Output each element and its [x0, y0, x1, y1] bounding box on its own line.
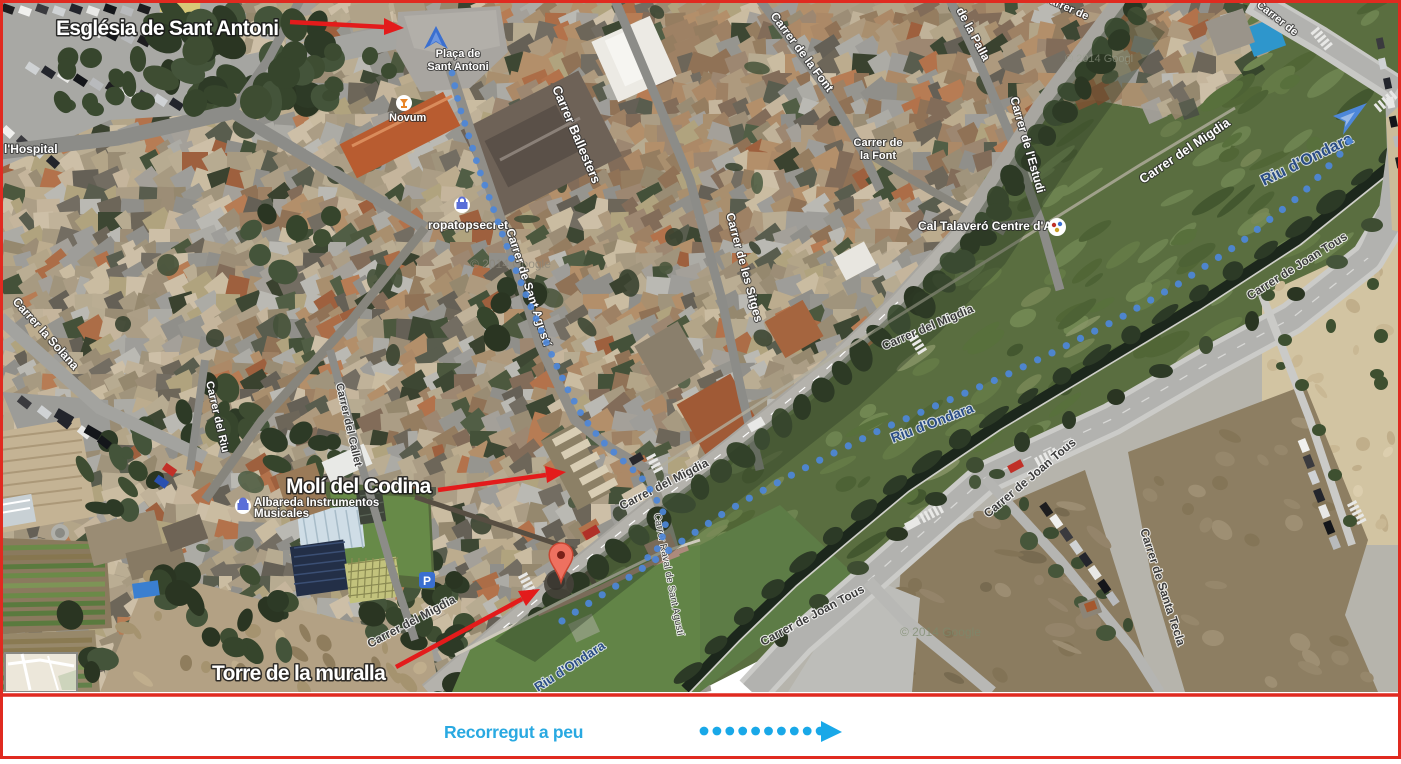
svg-text:Recorregut a peu: Recorregut a peu [444, 722, 583, 742]
svg-text:Cal Talaveró Centre d'Art: Cal Talaveró Centre d'Art [918, 219, 1061, 233]
svg-text:Molí del Codina: Molí del Codina [286, 475, 432, 498]
svg-text:Carrer de: Carrer de [854, 137, 903, 149]
svg-text:la Font: la Font [860, 150, 896, 162]
svg-text:© 2014 Googl: © 2014 Googl [1065, 53, 1133, 65]
svg-text:© 2014 Google: © 2014 Google [900, 625, 981, 639]
svg-text:Novum: Novum [389, 112, 427, 124]
svg-text:P: P [423, 574, 431, 588]
svg-text:Musicales: Musicales [254, 508, 309, 520]
svg-text:Sant Antoni: Sant Antoni [427, 61, 488, 73]
svg-text:l'Hospital: l'Hospital [4, 142, 58, 156]
svg-text:Plaça de: Plaça de [436, 48, 481, 60]
svg-text:Torre de la muralla: Torre de la muralla [212, 662, 386, 685]
svg-text:Església de Sant Antoni: Església de Sant Antoni [56, 17, 278, 40]
